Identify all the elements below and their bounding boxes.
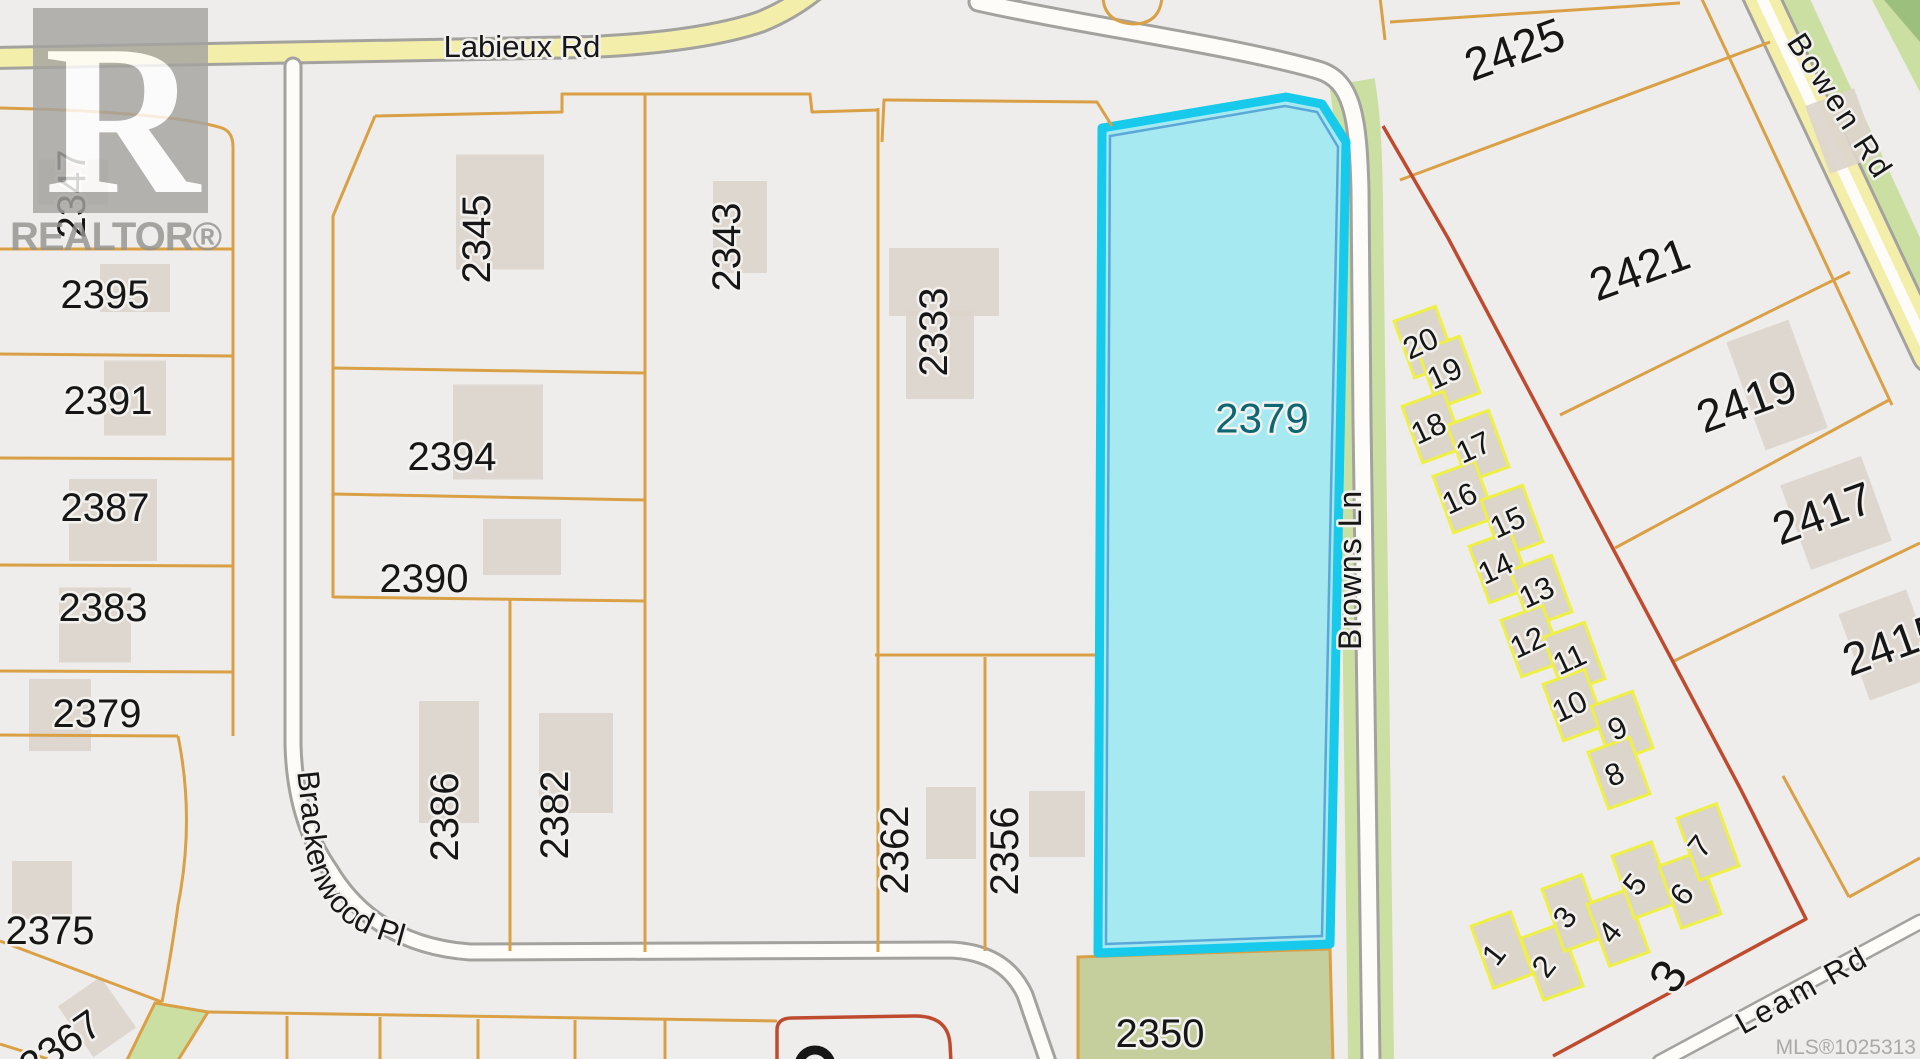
mls-number: MLS®1025313 bbox=[1776, 1036, 1916, 1059]
parcel-label-2350: 2350 bbox=[1116, 1012, 1205, 1056]
parcel-label-2390: 2390 bbox=[380, 557, 469, 601]
realtor-watermark: R REALTOR® bbox=[10, 0, 222, 259]
realtor-logo-r-icon: R bbox=[44, 0, 202, 239]
parcel-label-2383: 2383 bbox=[59, 586, 148, 630]
building-footprint bbox=[1029, 791, 1085, 857]
parcel-label-2394: 2394 bbox=[408, 435, 497, 479]
parcel-label-2387: 2387 bbox=[61, 486, 150, 530]
parcel-label-2345: 2345 bbox=[455, 195, 499, 284]
parcel-label-2375: 2375 bbox=[6, 909, 95, 953]
highlighted-parcel-2379[interactable] bbox=[1098, 97, 1346, 953]
parcel-map: 2019181716151413121110981234567 23472395… bbox=[0, 0, 1920, 1059]
road-label-browns: Browns Ln bbox=[1332, 490, 1368, 650]
parcel-label-2379: 2379 bbox=[53, 692, 142, 736]
parcel-label-2386: 2386 bbox=[423, 773, 467, 862]
parcel-label-2382: 2382 bbox=[533, 771, 577, 860]
parcel-label-2343: 2343 bbox=[705, 203, 749, 292]
highlighted-parcel-outline[interactable] bbox=[1098, 97, 1346, 953]
road-label-labieux: Labieux Rd bbox=[444, 29, 601, 64]
parcel-label-2356: 2356 bbox=[983, 807, 1027, 896]
building-footprint bbox=[483, 519, 561, 575]
parcel-label-2333: 2333 bbox=[912, 288, 956, 377]
parcel-label-2362: 2362 bbox=[873, 806, 917, 895]
parcel-label-2391: 2391 bbox=[64, 379, 153, 423]
realtor-wordmark: REALTOR® bbox=[10, 215, 222, 259]
building-footprint bbox=[926, 787, 976, 859]
parcel-label-2395: 2395 bbox=[61, 273, 150, 317]
parcel-label-2379: 2379 bbox=[1215, 395, 1308, 442]
